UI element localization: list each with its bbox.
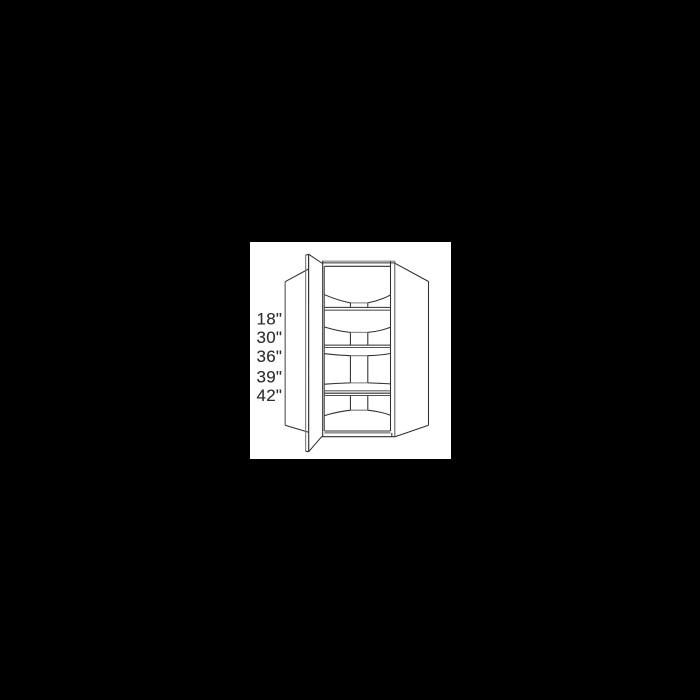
svg-text:39": 39" <box>257 367 283 386</box>
svg-text:30": 30" <box>257 328 283 347</box>
svg-text:42": 42" <box>257 386 283 405</box>
svg-text:18": 18" <box>257 309 283 328</box>
svg-text:36": 36" <box>257 347 283 366</box>
